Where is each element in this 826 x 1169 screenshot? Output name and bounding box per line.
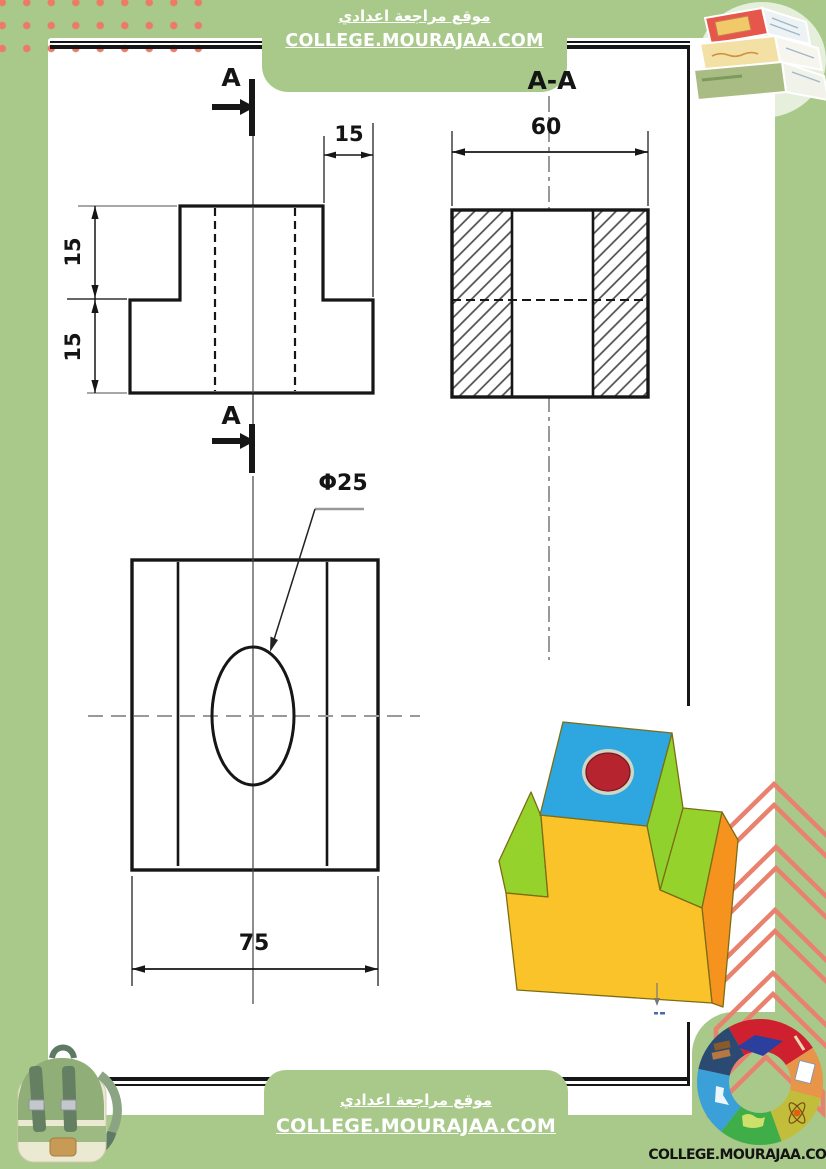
dim-tab-width: 15 bbox=[334, 122, 363, 146]
worksheet-page: موقع مراجعة اعدادي COLLEGE.MOURAJAA.COM … bbox=[0, 0, 826, 1169]
hole-diameter-label: Φ25 bbox=[318, 471, 367, 496]
brand-url-text: COLLEGE.MOURAJAA.COM bbox=[648, 1147, 826, 1163]
hatched-wall-right bbox=[593, 210, 648, 397]
dim-width: 75 bbox=[239, 931, 270, 956]
top-view: Φ25 75 bbox=[88, 471, 420, 1004]
cut-arrow-bottom bbox=[212, 438, 242, 444]
front-view: A 15 15 15 bbox=[61, 63, 373, 473]
backpack-icon bbox=[18, 1048, 117, 1163]
hatched-wall-left bbox=[452, 210, 512, 397]
cut-arrow-label-bottom: A bbox=[221, 401, 241, 430]
books-stack-icon bbox=[694, 2, 826, 118]
cut-plane-bar-bottom bbox=[249, 424, 255, 473]
dim-height-lower: 15 bbox=[61, 332, 85, 361]
section-view-aa: A-A 60 bbox=[452, 66, 648, 660]
cut-plane-bar-top bbox=[249, 79, 255, 136]
iso-hole bbox=[586, 753, 630, 791]
iso-left-step-top bbox=[499, 792, 548, 897]
section-title: A-A bbox=[527, 66, 577, 95]
cut-arrow-top bbox=[212, 104, 242, 110]
dim-height-upper: 15 bbox=[61, 237, 85, 266]
brand-ring-logo: COLLEGE.MOURAJAA.COM bbox=[648, 1019, 826, 1163]
isometric-view bbox=[499, 722, 738, 1015]
front-outline bbox=[130, 206, 373, 393]
atom-icon bbox=[794, 1110, 801, 1117]
dim-depth: 60 bbox=[531, 115, 562, 140]
artwork-layer: A 15 15 15 bbox=[0, 0, 826, 1169]
cut-arrow-label-top: A bbox=[221, 63, 241, 92]
